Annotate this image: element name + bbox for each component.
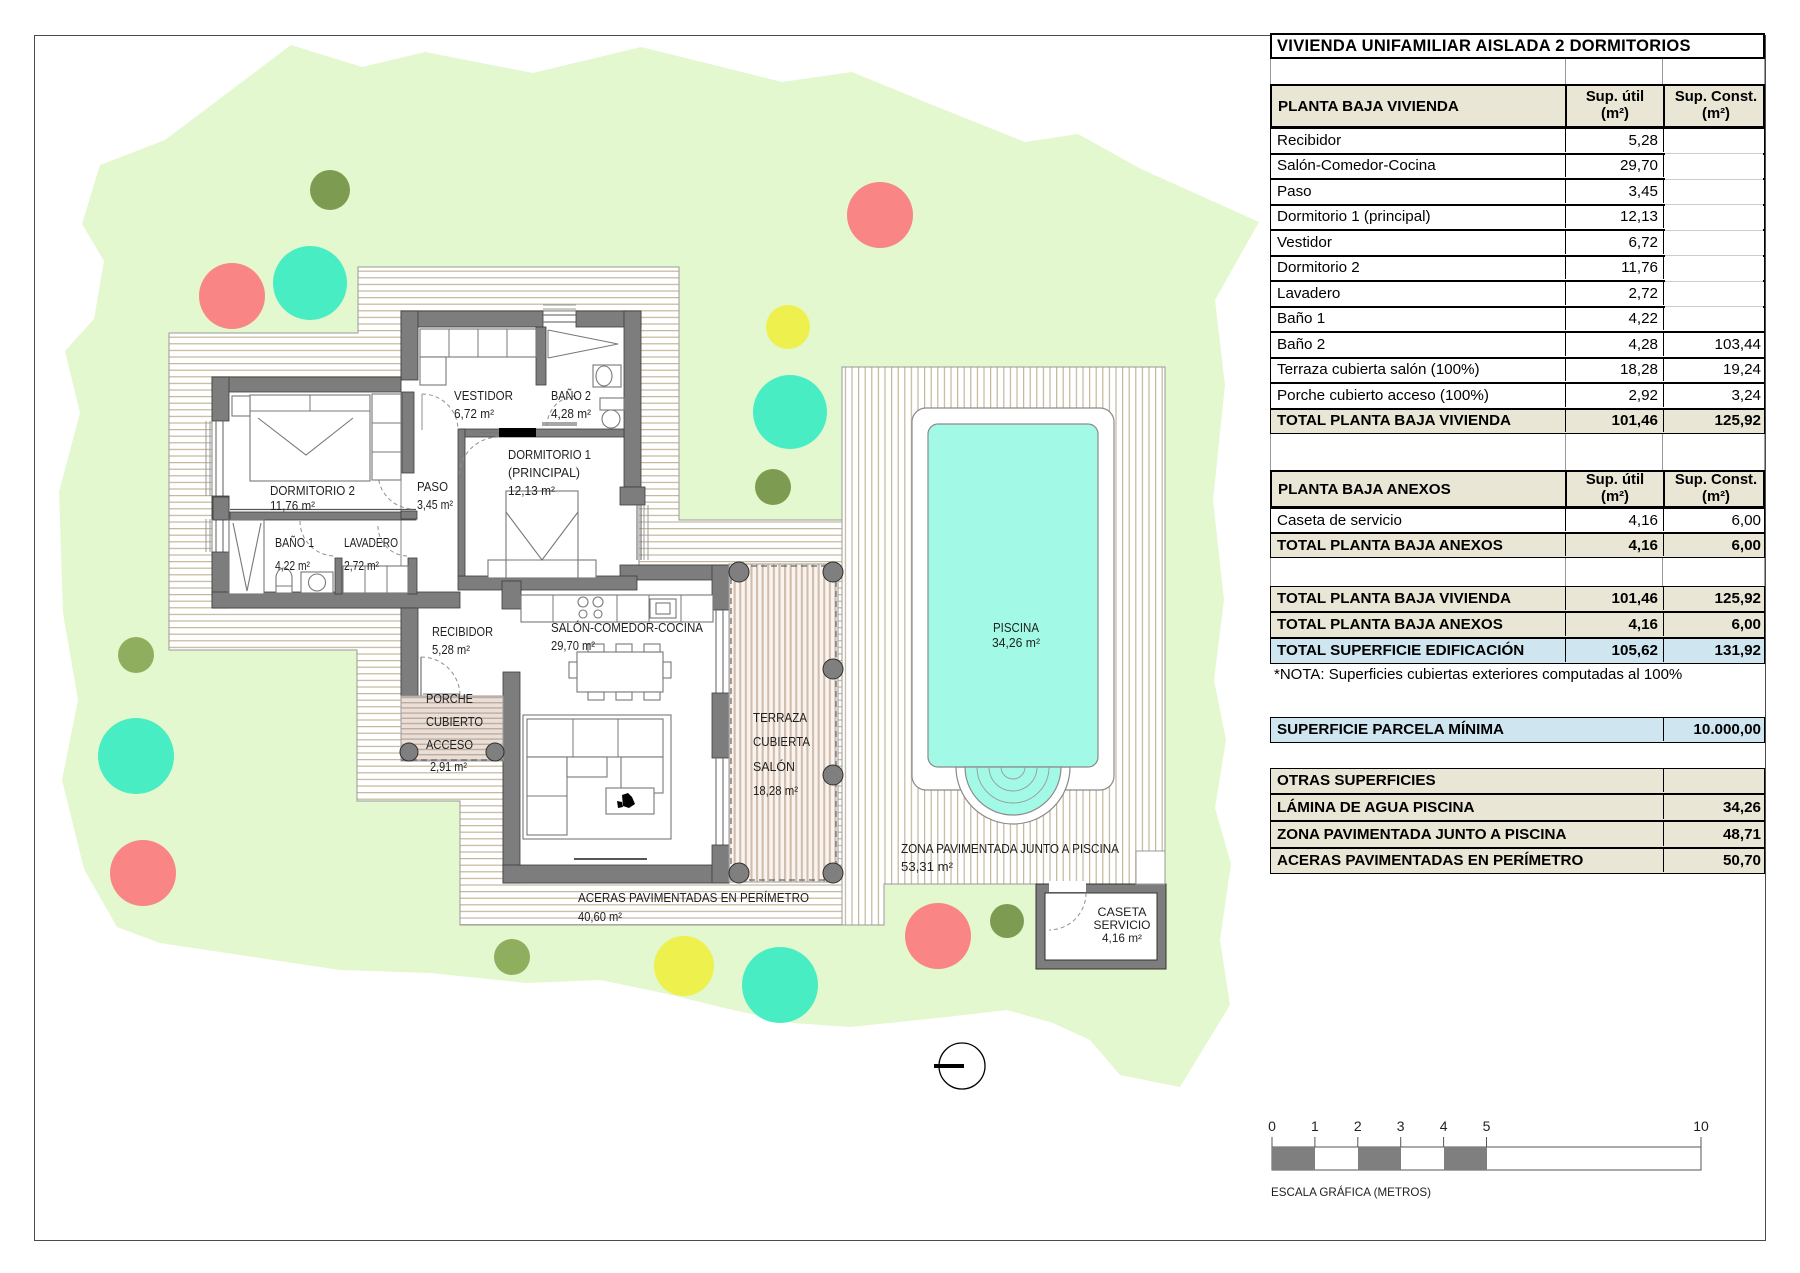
svg-text:11,76 m²: 11,76 m²: [270, 498, 316, 513]
svg-text:3,45 m²: 3,45 m²: [417, 497, 454, 512]
svg-text:ZONA PAVIMENTADA JUNTO A PISCI: ZONA PAVIMENTADA JUNTO A PISCINA: [901, 842, 1120, 856]
svg-text:(PRINCIPAL): (PRINCIPAL): [508, 465, 580, 480]
svg-text:2,91 m²: 2,91 m²: [430, 759, 468, 774]
svg-text:5: 5: [1483, 1118, 1491, 1134]
svg-text:ESCALA GRÁFICA (METROS): ESCALA GRÁFICA (METROS): [1271, 1184, 1431, 1199]
svg-text:ACCESO: ACCESO: [426, 737, 473, 752]
svg-text:PASO: PASO: [417, 479, 448, 494]
svg-text:4,28 m²: 4,28 m²: [551, 406, 592, 421]
svg-text:LAVADERO: LAVADERO: [344, 535, 398, 550]
svg-text:0: 0: [1268, 1118, 1276, 1134]
svg-text:4,16 m²: 4,16 m²: [1102, 933, 1142, 945]
svg-text:5,28 m²: 5,28 m²: [432, 642, 471, 657]
svg-text:SALÓN-COMEDOR-COCINA: SALÓN-COMEDOR-COCINA: [551, 620, 703, 635]
svg-text:3: 3: [1397, 1118, 1405, 1134]
svg-text:2: 2: [1354, 1118, 1362, 1134]
svg-text:PISCINA: PISCINA: [993, 620, 1039, 635]
svg-text:BAÑO 1: BAÑO 1: [275, 535, 314, 550]
svg-text:10: 10: [1693, 1118, 1709, 1134]
svg-text:34,26 m²: 34,26 m²: [992, 635, 1041, 650]
svg-text:BAÑO 2: BAÑO 2: [551, 388, 591, 403]
svg-text:12,13 m²: 12,13 m²: [508, 483, 556, 498]
svg-text:4: 4: [1440, 1118, 1448, 1134]
svg-text:53,31 m²: 53,31 m²: [901, 860, 953, 874]
svg-text:PORCHE: PORCHE: [426, 691, 473, 706]
svg-text:SALÓN: SALÓN: [753, 759, 795, 774]
svg-text:SERVICIO: SERVICIO: [1094, 920, 1151, 932]
svg-text:VESTIDOR: VESTIDOR: [454, 388, 513, 403]
svg-text:TERRAZA: TERRAZA: [753, 710, 807, 725]
svg-text:29,70 m²: 29,70 m²: [551, 638, 596, 653]
svg-text:18,28 m²: 18,28 m²: [753, 783, 799, 798]
svg-text:CUBIERTA: CUBIERTA: [753, 734, 810, 749]
svg-text:DORMITORIO 1: DORMITORIO 1: [508, 447, 591, 462]
svg-text:RECIBIDOR: RECIBIDOR: [432, 624, 493, 639]
svg-text:CASETA: CASETA: [1098, 907, 1147, 919]
svg-text:DORMITORIO 2: DORMITORIO 2: [270, 483, 355, 498]
svg-text:6,72 m²: 6,72 m²: [454, 406, 495, 421]
svg-text:40,60 m²: 40,60 m²: [578, 909, 623, 924]
svg-text:ACERAS PAVIMENTADAS EN PERÍMET: ACERAS PAVIMENTADAS EN PERÍMETRO: [578, 890, 809, 905]
svg-text:1: 1: [1311, 1118, 1319, 1134]
svg-text:CUBIERTO: CUBIERTO: [426, 714, 483, 729]
svg-text:4,22 m²: 4,22 m²: [275, 558, 311, 573]
svg-text:2,72 m²: 2,72 m²: [344, 558, 380, 573]
